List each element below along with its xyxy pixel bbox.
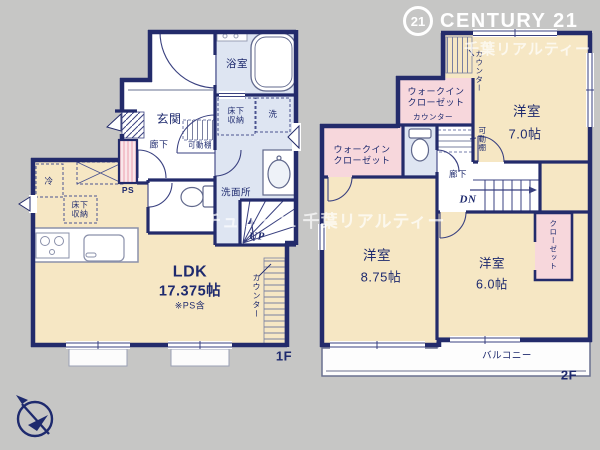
room-label-ldk: LDK [173,264,207,283]
kitchen-counter [32,228,138,262]
room-label-bedroom7: 洋室 [513,104,541,120]
label-movable-shelf-2f: 可動棚 [478,126,486,152]
label-storage-hall: 床下収納 [227,107,246,126]
counter-1f [264,258,285,345]
label-counter-1f: カウンター [252,274,260,319]
label-ldk-note: ※PS含 [175,301,206,312]
label-movable-shelf-1f: 可動棚 [188,142,212,151]
room-label-bedroom875: 洋室 [363,248,391,264]
label-ldk-size: 17.375帖 [159,283,221,300]
room-label-bath: 浴室 [226,58,248,70]
label-bedroom7-size: 7.0帖 [508,126,541,141]
toilet-2f-icon [409,129,431,161]
label-bedroom6-size: 6.0帖 [476,278,508,293]
label-laundry: 洗 [268,109,277,119]
left-window-icon [19,197,30,211]
room-label-bedroom6: 洋室 [479,257,505,272]
label-bedroom875-size: 8.75帖 [361,269,402,284]
watermark-center: センチュリー21 千葉リアルティー [168,207,445,232]
bathtub-icon [251,33,296,91]
floor2-plan [318,29,594,376]
watermark-top: 千葉リアルティー [464,38,591,59]
label-stairs-down: DN [460,194,477,207]
room-label-genkan: 玄関 [156,112,181,126]
label-fridge: 冷 [44,176,53,186]
label-storage-ldk: 床下収納 [71,201,90,220]
toilet-1f-icon [181,186,215,207]
label-closet: クローゼット [549,220,557,271]
entrance-step [122,112,144,138]
label-ps: PS [122,185,134,195]
washbasin-icon [263,150,296,195]
floorplan-page: { "branding": { "badge": "21", "name": "… [0,0,600,450]
compass-icon [16,395,52,436]
room-label-wic-side: ウォークインクローゼット [332,144,392,165]
room-label-washroom: 洗面所 [221,187,251,198]
movable-shelf-1f [183,120,215,140]
floor2-label: 2F [561,367,577,382]
label-balcony: バルコニー [482,350,532,361]
ps-shaft [119,140,137,183]
room-label-corridor-1f: 廊下 [149,140,168,151]
century21-logo: 21 CENTURY 21 [403,6,578,36]
label-counter-wic: カウンター [413,114,453,123]
bath-door [219,91,245,99]
room-label-corridor-2f: 廊下 [449,169,467,179]
floor1-label: 1F [276,348,292,363]
century21-badge-icon: 21 [403,6,433,36]
century21-name: CENTURY 21 [440,10,578,33]
entrance-door-icon [107,114,121,131]
room-label-wic-top: ウォークインクローゼット [406,86,466,107]
movable-shelf-2f [438,130,474,152]
label-stairs-up: UP [249,231,265,244]
